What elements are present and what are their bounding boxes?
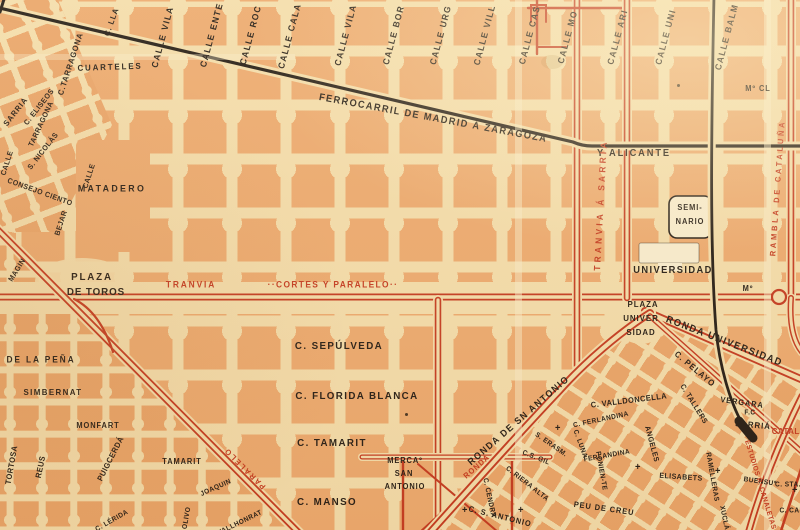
label-bejar: BEJAR [53,209,68,236]
label-plaza-cataluna: CATALUÑA [772,427,800,436]
label-calle-urgel: CALLE URG [429,4,454,66]
label-cs-gil: C.S. GIL [521,449,551,466]
label-calle-balmes: CALLE BALM [714,3,740,71]
label-calle-villarroel: CALLE VILL [473,4,498,67]
label-olivo: OLIVO [182,506,193,529]
label-plaza-de-toros-1: PLAZA [71,272,113,283]
label-calle-universidad: CALLE UNI [654,8,677,66]
label-c-pelayo: C. PELAYO [673,350,717,389]
label-peu-de-creu: PEU DE CREU [573,501,635,517]
label-c-florida-blanca: C. FLORIDA BLANCA [295,391,418,402]
label-c-llansa: C. LLA [103,7,121,38]
label-de-la-pena: DE LA PEÑA [7,356,76,365]
label-mercado-san-antonio-1: MERCAº [387,457,423,465]
label-plaza-universidad-1: PLAZA [627,300,658,309]
label-calle-calabria: CALLE CALA [277,2,303,69]
label-reus: REUS [35,455,48,479]
label-c-sepulveda: C. SEPÚLVEDA [295,341,383,352]
label-tranvia-cortes-2: ··CORTES Y PARALELO·· [268,281,399,290]
label-church-cross-4: + [518,506,524,516]
label-c-manso: C. MANSO [297,497,357,508]
label-vallhonrat: VALLHONRAT [217,509,264,530]
label-c-riera-alta: C. RIERA ALTA [504,465,550,503]
label-monasterio-top: Mº CL [745,85,771,93]
label-seminario-2: NARIO [676,218,705,226]
label-calle-casanova: CALLE CAS [518,5,542,66]
map-canvas: CALLE VILACALLE ENTECALLE ROCCALLE CALAC… [0,0,800,530]
label-tamarit-west: TAMARIT [162,458,201,466]
label-c-carmen: C. CARMEN [779,508,800,515]
label-mercado-san-antonio-3: ANTONIO [385,483,426,491]
label-seminario-1: SEMI- [677,204,702,212]
label-church-cross-5: + [792,486,798,496]
label-church-cross-6: + [555,424,561,434]
label-xucla: XUCLÁ [718,505,730,530]
label-plaza-universidad-2: UNIVER [623,314,658,323]
label-rambla-de-cataluna: RAMBLA DE CATALUÑA [769,119,787,256]
label-tranvia-a-sarria: TRANVIA Á SARRIA [593,139,609,271]
label-universidad: UNIVERSIDAD [633,266,712,276]
label-ferrocarril-madrid-zaragoza: FERROCARRIL DE MADRID Á ZARAGOZA [318,93,548,145]
label-plaza-universidad-3: SIDAD [626,328,655,337]
label-calle-vilamari: CALLE VILA [150,5,175,68]
label-joaquin: JOAQUIN [200,478,233,498]
label-c-tamarit: C. TAMARIT [297,438,367,449]
labels-layer: CALLE VILACALLE ENTECALLE ROCCALLE CALAC… [0,0,800,530]
label-monfart: MONFART [76,422,119,430]
label-plaza-de-toros-2: DE TOROS [67,287,125,298]
label-ferlandina-2: FERLANDINA [583,448,630,463]
label-c-tallers: C. TALLERS [679,383,709,425]
label-monasterio-mid: Mº [743,285,754,293]
label-tortosa: TORTOSA [5,445,20,485]
label-vergara: VERGARA [720,396,764,410]
label-cuarteles: CUARTELES [77,62,142,73]
label-calle-montaner: CALLE MO [557,9,580,64]
label-fc: F.C [744,410,755,417]
label-matadero: MATADERO [78,184,146,194]
label-ramelleras: RAMELLERAS [704,452,720,502]
label-consejo-ciento: CONSEJO CIENTO [6,177,73,208]
label-calle-aribau: CALLE ARI [606,8,629,65]
label-ronda-de-sn-antonio: RONDA DE SN ANTONIO [467,375,572,468]
label-magin: MAGIN [7,257,27,283]
label-calle-entenza: CALLE ENTE [199,2,225,69]
label-church-cross-2: + [715,467,721,477]
label-elisabets: ELISABETS [659,472,703,483]
label-puigcerda: PUIGCERDÁ [96,435,125,482]
label-c-ferlandina-1: C. FERLANDINA [573,411,630,430]
label-mercado-san-antonio-2: SAN [395,470,413,478]
label-c-valldoncella: C. VALLDONCELLA [590,392,667,409]
label-church-cross-3: + [462,506,468,516]
label-fc-sarria: SARRIÁ [735,419,771,431]
label-c-luna: C. LUNA [572,429,589,459]
label-angeles: ANGELES [644,425,661,463]
label-church-cross-1: + [635,463,641,473]
label-calle-viladomat: CALLE VILA [333,3,358,66]
label-calle-rocafort: CALLE ROC [239,4,264,66]
label-simbernat: SIMBERNAT [24,388,83,397]
label-calle-borrell: CALLE BOR [382,4,407,66]
label-c-lerida: C. LÉRIDA [94,509,129,530]
label-calle-west: CALLE [0,150,15,177]
label-tranvia-cortes-1: TRANVIA [166,281,216,290]
